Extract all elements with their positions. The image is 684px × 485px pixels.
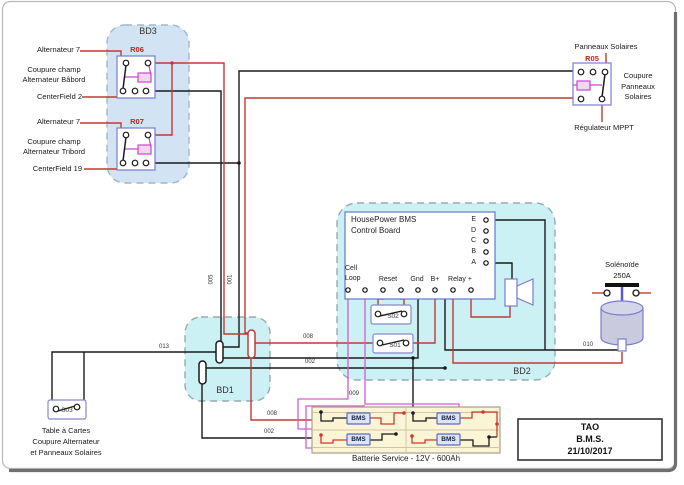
bd1-label: BD1	[209, 385, 241, 395]
relay-r06-id: R06	[122, 45, 152, 55]
solenoid-rating-label: 250A	[592, 271, 652, 281]
wire-label-002a: 002	[300, 359, 320, 366]
r05-top-label: Panneaux Solaires	[558, 42, 654, 52]
switch-s03-label: S03	[56, 407, 78, 415]
junction-dot	[443, 366, 447, 370]
terminal-b-label: B	[464, 247, 476, 256]
relay-r05-symbol	[573, 63, 611, 105]
wire-label-013: 013	[154, 344, 174, 351]
s03-caption: Table à Cartes Coupure Alternateur et Pa…	[10, 425, 122, 458]
junction-dot	[170, 61, 174, 65]
wire-label-001: 001	[228, 270, 235, 290]
bus-bar-black-1	[216, 341, 223, 363]
r06-desc-label: Coupure champ Alternateur Bâbord	[8, 65, 100, 85]
bd2-label: BD2	[504, 366, 540, 376]
terminal-reset-label: Reset	[374, 275, 402, 284]
relay-r06-symbol	[117, 56, 155, 98]
terminal-relay-label: Relay +	[441, 275, 479, 284]
wiring-layer	[0, 0, 684, 485]
wire-label-005: 005	[209, 270, 216, 290]
terminal-cell-loop-label: Cell Loop	[345, 264, 371, 283]
terminal-c-label: C	[464, 236, 476, 245]
r06-output-label: CenterField 2	[8, 92, 82, 102]
r07-desc-label: Coupure champ Alternateur Tribord	[8, 137, 100, 157]
wiring-diagram-page: BD3 BD2 BD1 R06 R07 R05 Alternateur 7 Co…	[0, 0, 684, 485]
battery-caption: Batterie Service - 12V - 600Ah	[320, 454, 492, 464]
bms-board-title: HousePower BMS Control Board	[351, 215, 461, 236]
relay-r07-id: R07	[122, 117, 152, 127]
terminal-a-label: A	[464, 258, 476, 267]
r06-input-label: Alternateur 7	[6, 45, 80, 55]
terminal-e-label: E	[464, 215, 476, 224]
wire-label-009: 009	[344, 391, 364, 398]
r05-bottom-label: Régulateur MPPT	[556, 123, 652, 133]
bus-bar-black-2	[199, 361, 206, 384]
switch-s02-label: S02	[382, 313, 404, 321]
bms-module-label: BMS	[437, 413, 460, 424]
bms-module-label: BMS	[437, 434, 460, 445]
title-block-text: TAO B.M.S. 21/10/2017	[518, 421, 662, 457]
switch-s01-label: S01	[384, 342, 406, 350]
solenoid-name-label: Solénoïde	[590, 260, 654, 270]
junction-dot	[411, 356, 415, 360]
r07-input-label: Alternateur 7	[6, 117, 80, 127]
relay-r07-symbol	[117, 128, 155, 170]
wire-label-008a: 008	[298, 334, 318, 341]
wire-label-002b: 002	[259, 429, 279, 436]
r07-output-label: CenterField 19	[4, 164, 82, 174]
relay-r05-id: R05	[577, 54, 607, 64]
bd3-label: BD3	[132, 26, 164, 36]
terminal-d-label: D	[464, 226, 476, 235]
bms-module-label: BMS	[347, 413, 370, 424]
solenoid-symbol	[601, 283, 643, 351]
bms-module-label: BMS	[347, 434, 370, 445]
bus-bar-red	[248, 330, 255, 358]
wire-label-008b: 008	[262, 411, 282, 418]
wire-label-010: 010	[578, 342, 598, 349]
battery-symbol	[312, 407, 500, 453]
junction-dot	[237, 161, 241, 165]
r05-desc-label: Coupure Panneaux Solaires	[608, 71, 668, 103]
